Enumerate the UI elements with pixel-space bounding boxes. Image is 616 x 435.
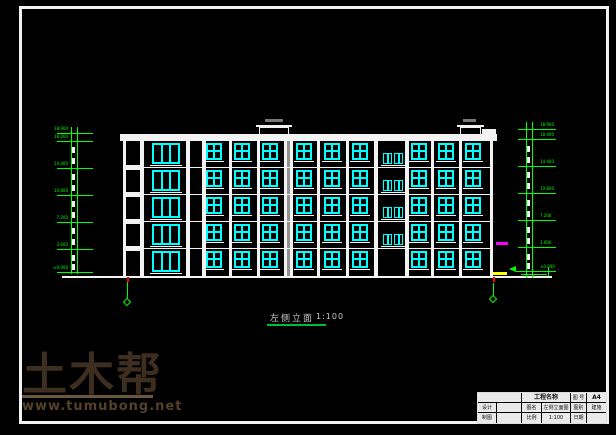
window-sill [294,269,314,270]
square-window [411,170,427,187]
watermark-url: www.tumubong.net [22,399,182,414]
window-sill [322,269,342,270]
window-pane-divider [387,208,389,217]
parapet-step [482,129,496,135]
square-window [465,197,481,214]
window-pane-divider [467,258,479,260]
window-sill [150,246,182,247]
window-sill [381,165,405,166]
dimension-text-mark [527,200,530,206]
elevation-tick [518,139,556,140]
window-pane-divider [387,154,389,163]
window-pane-divider [161,172,163,189]
elevation-label: 10.800 [38,189,68,193]
elevation-label: 18.900 [540,123,570,127]
square-window [411,224,427,241]
window-sill [463,269,483,270]
stair-window [383,153,392,164]
window-sill [294,215,314,216]
roof-structure [460,127,481,135]
title-block-designer-label: 设计 [478,403,496,412]
title-block-date-label: 日期 [571,413,586,423]
square-window [411,251,427,268]
square-window [438,251,454,268]
window-sill [436,188,456,189]
elevation-tick [518,129,556,130]
window-pane-divider [326,150,338,152]
tall-window [152,143,180,164]
window-sill [409,269,429,270]
square-window [234,143,250,160]
window-sill [350,215,370,216]
window-sill [260,242,280,243]
dimension-line [532,122,533,278]
expansion-joint-core [287,141,290,277]
window-pane-divider [264,204,276,206]
elevation-label: 7.200 [540,214,570,218]
window-sill [150,192,182,193]
window-pane-divider [236,177,248,179]
square-window [411,143,427,160]
window-pane-divider [298,150,310,152]
facade-mullion [317,141,320,277]
stair-window [383,180,392,191]
axis-marker-red-tick [493,277,495,282]
square-window [234,170,250,187]
square-window [438,224,454,241]
facade-mullion [459,141,462,277]
square-window [352,224,368,241]
window-sill [436,215,456,216]
window-pane-divider [169,172,171,189]
title-block: 工程名称 图 号 A4 设计 图名 左侧立面图 图别 建施 制图 比例 1:10… [477,392,607,424]
window-sill [322,188,342,189]
window-sill [381,246,405,247]
facade-mullion [431,141,434,277]
stair-window [394,180,403,191]
spandrel-block [126,192,140,197]
window-pane-divider [208,258,220,260]
square-window [206,143,222,160]
window-sill [350,161,370,162]
elevation-label: 18.000 [38,135,68,139]
facade-left-edge [123,141,126,277]
square-window [262,170,278,187]
elevation-label: 18.000 [540,133,570,137]
window-pane-divider [413,150,425,152]
cad-drawing-canvas: 左侧立面 1:100 土木帮 www.tumubong.net 工程名称 图 号… [0,0,616,435]
window-pane-divider [169,145,171,162]
floor-line [126,221,490,222]
title-block-scale-value: 1:100 [542,413,570,423]
square-window [296,224,312,241]
window-pane-divider [398,181,400,190]
ground-line [62,276,552,278]
square-window [352,143,368,160]
elevation-tick [57,222,93,223]
elevation-label: 18.900 [38,127,68,131]
dimension-text-mark [527,227,530,233]
title-block-empty-cell [478,393,521,402]
elevation-label: 7.200 [38,216,68,220]
title-block-category-value: 建施 [587,403,606,412]
square-window [262,224,278,241]
window-pane-divider [298,258,310,260]
facade-mullion [374,141,378,277]
dimension-text-mark [527,146,530,152]
square-window [234,224,250,241]
window-sill [232,242,252,243]
elevation-label: 3.600 [540,241,570,245]
ground-level-arrow-icon [509,266,516,272]
floor-line [126,248,490,249]
dimension-text-mark [72,147,75,153]
dimension-text-mark [72,264,75,270]
window-sill [463,215,483,216]
floor-line [126,194,490,195]
window-pane-divider [467,150,479,152]
dimension-text-mark [72,185,75,191]
title-block-drafter-label: 制图 [478,413,496,423]
roof-structure [259,127,289,135]
square-window [296,170,312,187]
window-pane-divider [398,235,400,244]
window-sill [150,219,182,220]
square-window [324,224,340,241]
elevation-tick [57,141,93,142]
window-pane-divider [169,253,171,270]
window-sill [350,188,370,189]
tall-window [152,170,180,191]
window-pane-divider [440,231,452,233]
title-block-designer-value [497,403,521,412]
elevation-label: 10.800 [540,187,570,191]
window-pane-divider [354,204,366,206]
window-pane-divider [236,204,248,206]
window-sill [204,215,224,216]
axis-marker-stem [127,282,128,299]
square-window [206,170,222,187]
facade-mullion [186,141,190,277]
window-pane-divider [354,150,366,152]
window-pane-divider [413,204,425,206]
stair-window [394,234,403,245]
window-sill [409,215,429,216]
window-pane-divider [387,235,389,244]
dimension-text-mark [72,239,75,245]
dimension-text-mark [527,183,530,189]
window-pane-divider [398,154,400,163]
elevation-tick [518,193,556,194]
square-window [352,197,368,214]
window-sill [232,269,252,270]
window-pane-divider [413,177,425,179]
dimension-text-mark [72,228,75,234]
elevation-tick [518,247,556,248]
window-sill [409,188,429,189]
square-window [262,251,278,268]
window-pane-divider [354,177,366,179]
window-pane-divider [326,231,338,233]
square-window [324,251,340,268]
elevation-label: 14.400 [540,160,570,164]
window-sill [436,161,456,162]
window-sill [294,242,314,243]
title-block-sheet-no-value: A4 [587,393,606,402]
window-sill [232,215,252,216]
window-pane-divider [161,253,163,270]
expansion-joint [284,141,293,277]
window-pane-divider [169,226,171,243]
window-pane-divider [208,231,220,233]
title-block-drawing-name-value: 左侧立面图 [542,403,570,412]
dimension-text-mark [527,157,530,163]
square-window [438,197,454,214]
window-sill [232,161,252,162]
window-sill [436,242,456,243]
elevation-tick [518,220,556,221]
stair-window [383,207,392,218]
dimension-text-mark [72,255,75,261]
window-pane-divider [236,231,248,233]
spandrel-block [126,246,140,251]
window-pane-divider [298,177,310,179]
roof-annotation-tag [265,119,283,122]
watermark: 土木帮 www.tumubong.net [22,352,182,414]
tall-window [152,251,180,272]
window-sill [322,242,342,243]
facade-mullion [346,141,349,277]
window-pane-divider [298,204,310,206]
square-window [206,224,222,241]
spandrel-block [126,165,140,170]
drawing-title: 左侧立面 [270,311,314,324]
window-pane-divider [413,231,425,233]
ground-level-annotation [521,274,547,275]
window-sill [150,273,182,274]
window-sill [294,161,314,162]
square-window [438,170,454,187]
dimension-text-mark [527,238,530,244]
square-window [324,197,340,214]
title-block-project-label: 工程名称 [522,393,570,402]
watermark-logo: 土木帮 [22,352,182,398]
window-pane-divider [387,181,389,190]
square-window [465,224,481,241]
window-pane-divider [236,258,248,260]
window-pane-divider [264,150,276,152]
title-underline [267,324,326,326]
window-pane-divider [326,258,338,260]
dimension-text-mark [72,201,75,207]
window-sill [409,242,429,243]
square-window [352,170,368,187]
elevation-label: ±0.000 [540,265,570,269]
window-pane-divider [161,226,163,243]
window-sill [150,165,182,166]
window-pane-divider [236,150,248,152]
dimension-text-mark [527,263,530,269]
spandrel-block [126,219,140,224]
square-window [296,251,312,268]
window-sill [204,269,224,270]
window-sill [204,242,224,243]
window-sill [322,215,342,216]
window-pane-divider [208,177,220,179]
title-block-scale-label: 比例 [522,413,541,423]
facade-mullion [140,141,144,277]
window-sill [350,242,370,243]
dimension-text-mark [527,172,530,178]
window-pane-divider [161,145,163,162]
square-window [465,251,481,268]
window-sill [260,215,280,216]
elevation-tick [57,249,93,250]
window-pane-divider [326,177,338,179]
title-block-sheet-no-label: 图 号 [571,393,586,402]
square-window [262,197,278,214]
window-pane-divider [467,231,479,233]
window-pane-divider [264,258,276,260]
stair-window [394,207,403,218]
window-sill [436,269,456,270]
title-block-category-label: 图别 [571,403,586,412]
window-sill [463,188,483,189]
roof-annotation-tag [463,119,476,122]
dimension-text-mark [72,212,75,218]
square-window [411,197,427,214]
window-sill [381,192,405,193]
window-pane-divider [440,258,452,260]
window-pane-divider [264,177,276,179]
dimension-line [77,127,78,274]
accent-magenta-mark [496,242,508,245]
dimension-text-mark [72,158,75,164]
square-window [465,170,481,187]
window-sill [232,188,252,189]
square-window [206,251,222,268]
window-pane-divider [413,258,425,260]
square-window [296,143,312,160]
elevation-label: ±0.000 [38,266,68,270]
square-window [262,143,278,160]
window-sill [381,219,405,220]
window-sill [463,242,483,243]
square-window [206,197,222,214]
title-block-drawing-name-label: 图名 [522,403,541,412]
elevation-label: 3.600 [38,243,68,247]
window-pane-divider [354,258,366,260]
window-sill [204,161,224,162]
floor-line [126,167,490,168]
window-sill [294,188,314,189]
square-window [465,143,481,160]
dimension-text-mark [72,174,75,180]
window-pane-divider [440,204,452,206]
window-pane-divider [264,231,276,233]
window-pane-divider [208,204,220,206]
window-sill [463,161,483,162]
window-sill [409,161,429,162]
elevation-tick [57,272,93,273]
window-pane-divider [440,150,452,152]
square-window [438,143,454,160]
elevation-label: 14.400 [38,162,68,166]
window-pane-divider [467,204,479,206]
window-sill [260,188,280,189]
window-pane-divider [208,150,220,152]
stair-window [394,153,403,164]
window-pane-divider [398,208,400,217]
elevation-tick [518,166,556,167]
window-pane-divider [169,199,171,216]
accent-yellow-mark [491,272,507,275]
elevation-tick [518,271,556,272]
parapet-band [120,134,497,141]
dimension-text-mark [527,254,530,260]
dimension-text-mark [527,211,530,217]
title-block-date-value [587,413,606,423]
square-window [234,197,250,214]
tall-window [152,224,180,245]
window-pane-divider [440,177,452,179]
elevation-tick [57,195,93,196]
window-pane-divider [467,177,479,179]
window-pane-divider [161,199,163,216]
window-sill [260,161,280,162]
square-window [296,197,312,214]
window-pane-divider [326,204,338,206]
window-sill [350,269,370,270]
stair-window [383,234,392,245]
square-window [324,170,340,187]
square-window [324,143,340,160]
window-sill [204,188,224,189]
title-block-drafter-value [497,413,521,423]
drawing-scale: 1:100 [316,312,344,321]
window-sill [260,269,280,270]
elevation-tick [57,168,93,169]
tall-window [152,197,180,218]
window-pane-divider [298,231,310,233]
square-window [352,251,368,268]
window-sill [322,161,342,162]
square-window [234,251,250,268]
window-pane-divider [354,231,366,233]
facade-right-edge [490,141,493,277]
